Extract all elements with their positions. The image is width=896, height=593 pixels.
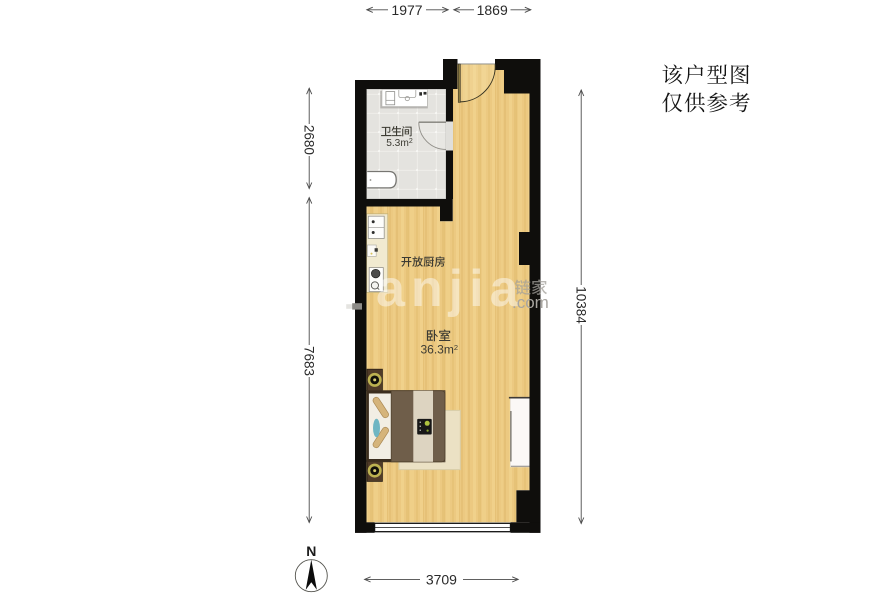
svg-text:1869: 1869 (477, 2, 508, 18)
svg-text:1977: 1977 (391, 2, 422, 18)
svg-text:N: N (306, 543, 316, 559)
svg-text:.com: .com (512, 293, 549, 312)
svg-text:7683: 7683 (302, 346, 317, 376)
svg-text:2680: 2680 (302, 125, 317, 155)
svg-text:3709: 3709 (426, 571, 457, 587)
svg-text:anjia: anjia (376, 260, 525, 318)
svg-text:5.3m2: 5.3m2 (386, 138, 413, 149)
svg-text:10384: 10384 (574, 286, 589, 324)
svg-text:36.3m2: 36.3m2 (421, 343, 459, 357)
